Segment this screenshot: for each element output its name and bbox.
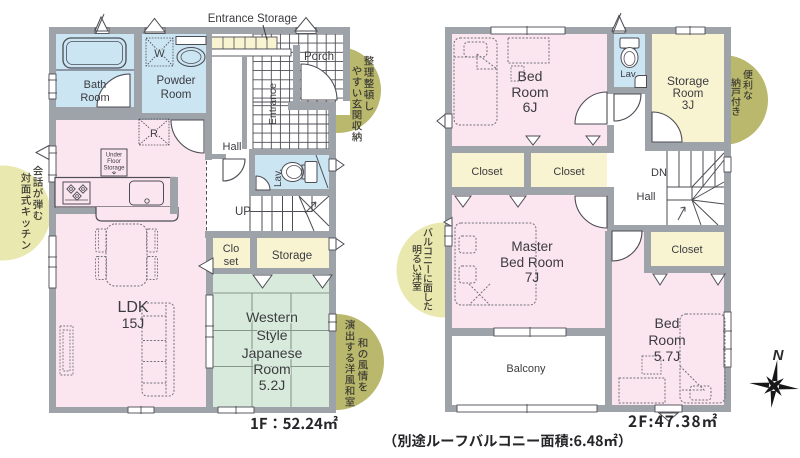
svg-text:Bath: Bath (84, 79, 107, 91)
svg-text:Storage: Storage (667, 74, 709, 88)
svg-text:5.2J: 5.2J (259, 377, 285, 393)
svg-text:Storage: Storage (103, 166, 125, 172)
svg-text:Room: Room (673, 88, 704, 100)
svg-text:Hall: Hall (637, 191, 656, 203)
svg-text:3J: 3J (682, 100, 694, 112)
svg-text:Clo: Clo (223, 243, 240, 255)
svg-text:Closet: Closet (471, 166, 502, 178)
svg-text:Storage: Storage (272, 250, 312, 262)
svg-text:Room: Room (511, 84, 548, 100)
svg-text:Lav.: Lav. (620, 69, 637, 80)
svg-text:5.7J: 5.7J (654, 348, 680, 364)
svg-text:Style: Style (256, 327, 287, 343)
svg-text:Bed: Bed (518, 68, 543, 84)
svg-text:Master: Master (511, 239, 553, 254)
svg-text:Floor: Floor (107, 159, 121, 165)
svg-text:Porch: Porch (304, 51, 334, 63)
svg-text:7J: 7J (525, 270, 539, 285)
svg-text:W: W (154, 48, 165, 60)
svg-text:Under: Under (106, 153, 122, 159)
svg-text:Bed Room: Bed Room (500, 255, 564, 270)
svg-text:UP: UP (235, 206, 251, 218)
svg-text:N: N (773, 347, 785, 364)
svg-text:Western: Western (246, 309, 298, 325)
svg-text:Bed: Bed (655, 315, 680, 331)
svg-text:Room: Room (648, 332, 685, 348)
svg-text:Entrance Storage: Entrance Storage (208, 13, 298, 25)
svg-text:LDK: LDK (117, 299, 148, 316)
svg-text:Closet: Closet (671, 244, 702, 256)
svg-text:Closet: Closet (553, 166, 584, 178)
svg-text:Hall: Hall (223, 141, 242, 153)
svg-text:DN: DN (651, 167, 667, 179)
svg-text:set: set (224, 256, 239, 268)
svg-text:Room: Room (80, 92, 109, 104)
svg-text:Entrance: Entrance (267, 83, 279, 125)
svg-text:R: R (150, 128, 158, 140)
svg-text:6J: 6J (523, 99, 538, 115)
svg-text:Powder: Powder (157, 75, 196, 87)
svg-text:Japanese: Japanese (242, 345, 303, 361)
svg-text:15J: 15J (122, 315, 145, 331)
svg-text:Room: Room (253, 361, 290, 377)
svg-text:Room: Room (161, 89, 192, 101)
svg-text:Lav.: Lav. (273, 169, 284, 187)
svg-text:Balcony: Balcony (506, 363, 546, 375)
